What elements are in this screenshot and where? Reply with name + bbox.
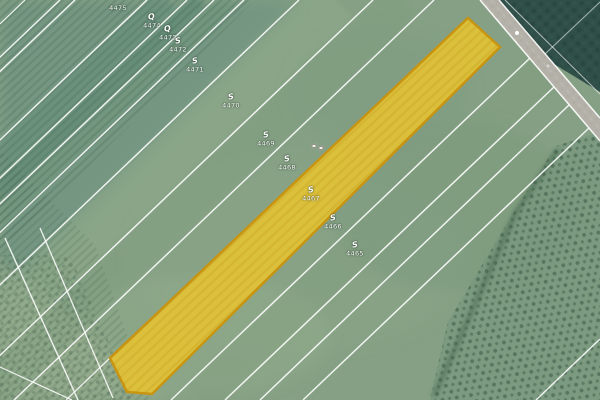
map-viewport[interactable]: 4475Q4474Q4473S4472S4471S4470S4469S4468S… [0,0,600,400]
map-canvas[interactable] [0,0,600,400]
